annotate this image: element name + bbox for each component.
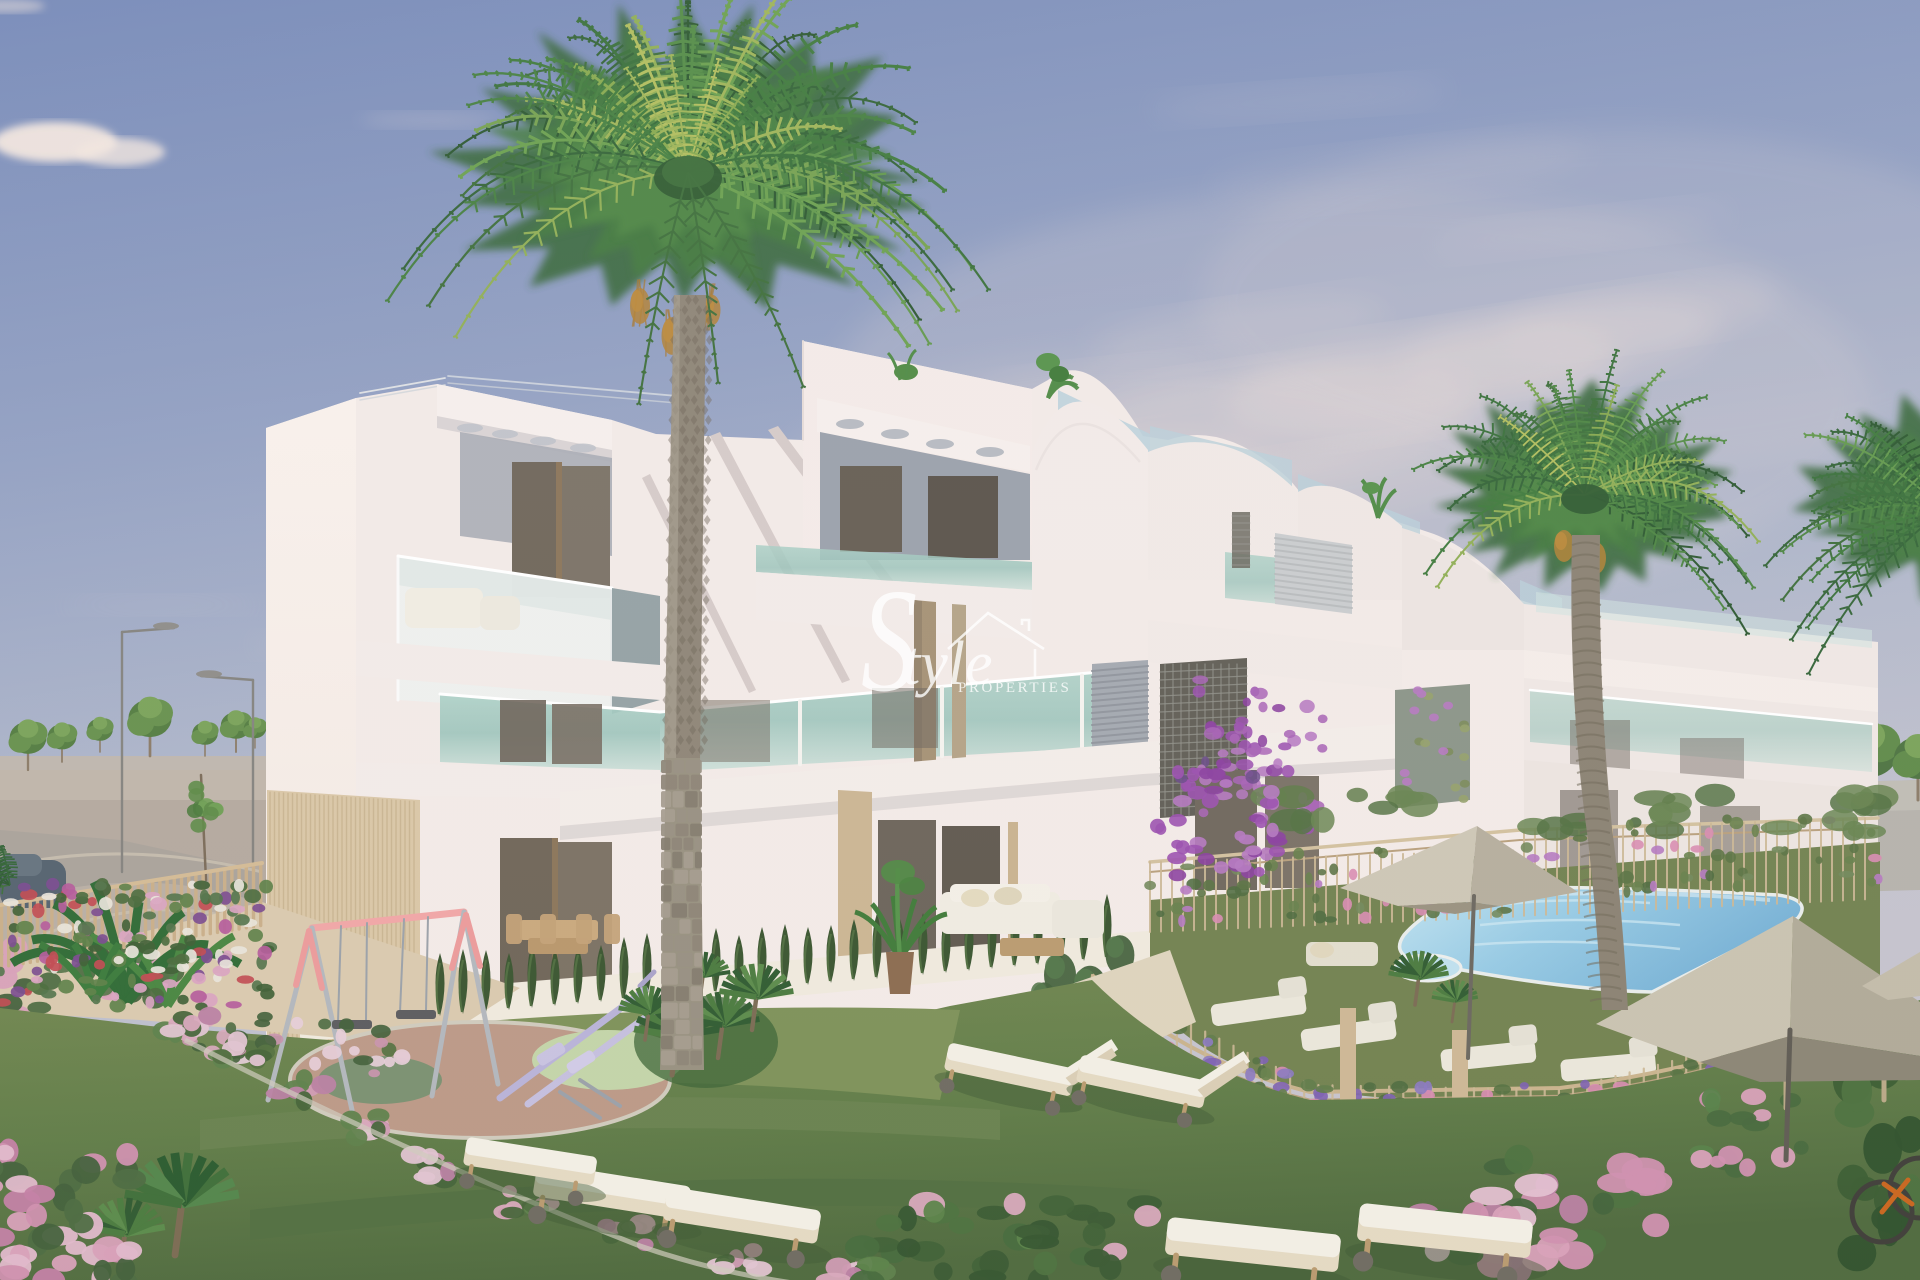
svg-text:PROPERTIES: PROPERTIES xyxy=(958,680,1071,696)
